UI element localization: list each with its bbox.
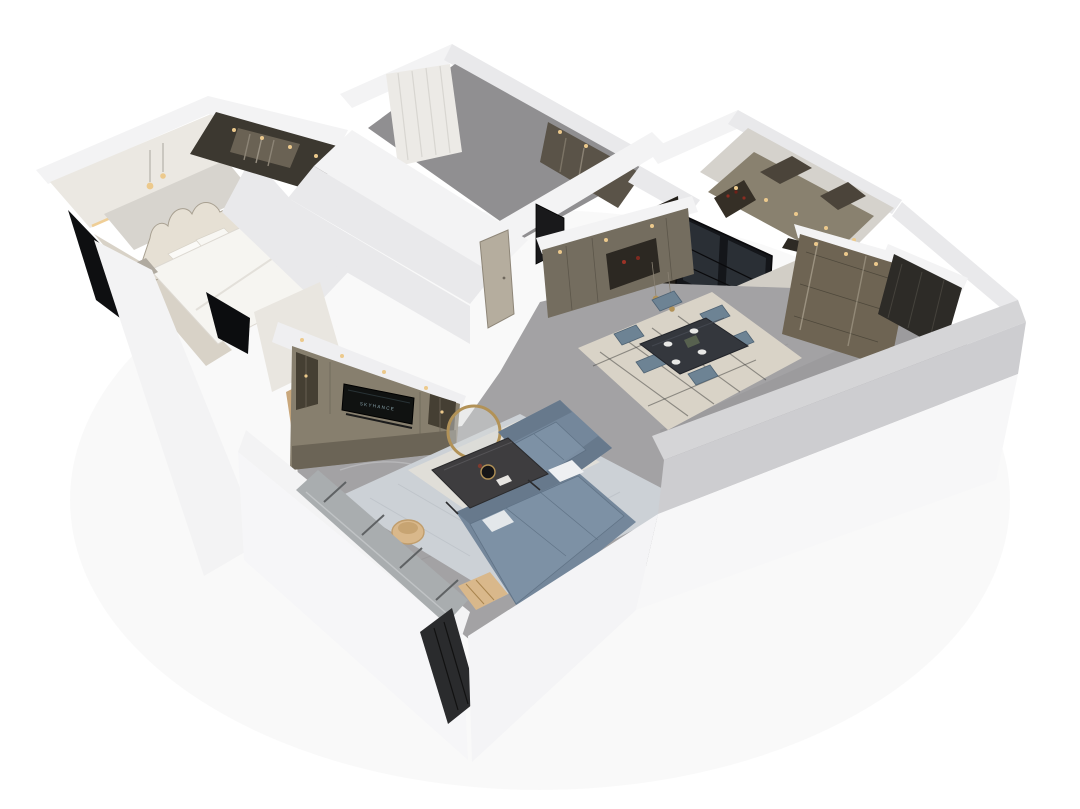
plate <box>664 341 673 346</box>
downlight <box>424 386 428 390</box>
downlight <box>558 130 562 134</box>
apartment-dollhouse-svg: SKYHANCE <box>0 0 1080 809</box>
red-decor <box>636 256 640 260</box>
downlight <box>382 370 386 374</box>
downlight <box>794 212 798 216</box>
shelf-light <box>304 374 307 377</box>
downlight <box>288 145 292 149</box>
downlight <box>734 186 738 190</box>
downlight <box>340 354 344 358</box>
downlight <box>650 224 654 228</box>
downlight <box>300 338 304 342</box>
downlight <box>314 154 318 158</box>
shelf-light <box>440 410 443 413</box>
plate <box>672 359 681 364</box>
downlight <box>232 128 236 132</box>
basket-opening <box>398 522 418 534</box>
downlight <box>260 136 264 140</box>
wine-bottle <box>734 190 737 193</box>
downlight <box>844 252 848 256</box>
red-decor <box>622 260 626 264</box>
downlight <box>764 198 768 202</box>
downlight <box>604 238 608 242</box>
gold-tray <box>481 465 495 479</box>
downlight <box>558 250 562 254</box>
plate <box>690 328 699 333</box>
door-handle <box>503 277 506 280</box>
sheer-curtains <box>386 64 462 166</box>
open-shelf-niche <box>296 352 318 410</box>
floorplan-render: SKYHANCE <box>0 0 1080 809</box>
wine-bottle <box>726 194 729 197</box>
downlight <box>814 242 818 246</box>
pendant-lamp <box>160 173 166 179</box>
wine-bottle <box>742 196 745 199</box>
downlight <box>584 144 588 148</box>
plate <box>698 349 707 354</box>
pendant-lamp <box>147 183 154 190</box>
downlight <box>824 226 828 230</box>
red-decor <box>478 464 482 468</box>
downlight <box>874 262 878 266</box>
